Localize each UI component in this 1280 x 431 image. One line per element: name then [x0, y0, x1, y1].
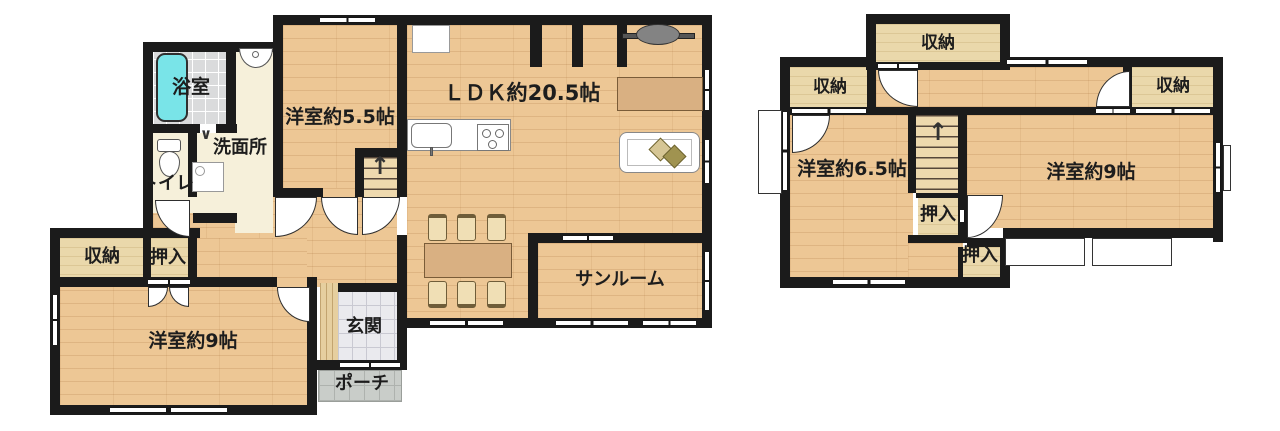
window-bay — [1092, 238, 1172, 266]
window — [704, 140, 710, 183]
room-label-bedroom-9-1f: 洋室約9帖 — [138, 332, 248, 352]
window — [1136, 108, 1210, 114]
room-label-sunroom: サンルーム — [572, 271, 668, 290]
wall-segment — [397, 235, 407, 370]
kitchen-faucet-icon — [430, 147, 433, 156]
window — [52, 295, 58, 345]
room-label-bath: 浴室 — [160, 78, 222, 98]
wall-segment — [355, 148, 364, 197]
wall-segment — [1003, 228, 1223, 238]
door-arc — [967, 195, 1003, 238]
floor-bedroom-6-5-ext — [908, 243, 963, 277]
window — [556, 320, 628, 326]
chair-icon — [428, 281, 447, 308]
room-label-oshiire-1f: 押入 — [145, 249, 191, 268]
dining-table-icon — [424, 243, 512, 278]
window — [340, 362, 400, 368]
window — [563, 235, 613, 241]
room-label-bedroom-6-5: 洋室約6.5帖 — [790, 160, 914, 180]
burner-icon — [482, 129, 491, 138]
window — [1007, 59, 1087, 65]
wall-segment — [143, 42, 153, 237]
wall-segment — [908, 235, 967, 243]
room-label-oshiire-2f-lower: 押入 — [957, 247, 1003, 266]
chair-icon — [487, 214, 506, 241]
window-bay — [1223, 145, 1231, 191]
wall-segment — [908, 107, 916, 193]
chair-icon — [457, 281, 476, 308]
wall-segment — [572, 25, 583, 67]
wall-segment — [338, 283, 407, 292]
wall-segment — [197, 277, 277, 287]
wall-segment — [226, 42, 236, 128]
wall-segment — [617, 25, 627, 67]
room-label-storage-2f-top: 収納 — [913, 35, 963, 53]
burner-icon — [488, 140, 497, 149]
chair-icon — [457, 214, 476, 241]
stairs-up-arrow-1f: ↑ — [369, 152, 391, 180]
room-label-ldk: ＬＤＫ約20.5帖 — [436, 82, 608, 104]
window — [878, 63, 918, 69]
window — [110, 407, 227, 413]
window — [782, 112, 788, 190]
floorplan-canvas: 浴室 洗面所 トイレ 洋室約5.5帖 ＬＤＫ約20.5帖 サンルーム 収納 押入… — [0, 0, 1280, 431]
tv-icon — [636, 24, 680, 45]
stairs-up-arrow-2f: ↑ — [926, 118, 950, 146]
window — [1215, 143, 1221, 192]
room-label-storage-1f: 収納 — [66, 248, 138, 267]
window — [1096, 108, 1130, 114]
wall-segment — [530, 25, 542, 67]
window — [704, 70, 710, 110]
wall-segment — [780, 57, 876, 67]
wall-segment — [528, 233, 538, 328]
window-bay — [1005, 238, 1085, 266]
chair-icon — [487, 281, 506, 308]
room-label-oshiire-2f-upper: 押入 — [915, 206, 961, 225]
cupboard-icon — [412, 25, 450, 53]
room-label-toilet: トイレ — [137, 175, 197, 194]
room-label-bedroom-9-2f: 洋室約9帖 — [1036, 163, 1146, 183]
bath-folding-door-marker: ∨ — [196, 125, 216, 143]
window — [704, 252, 710, 310]
window — [833, 279, 905, 285]
wall-segment — [193, 213, 237, 223]
wall-segment — [50, 277, 143, 287]
wall-segment — [283, 188, 323, 197]
window — [430, 320, 503, 326]
room-label-storage-2f-left: 収納 — [804, 79, 856, 97]
window — [792, 108, 866, 114]
window — [320, 17, 375, 23]
wall-segment — [397, 15, 407, 197]
wall-segment — [216, 124, 237, 133]
wall-segment — [143, 124, 200, 133]
room-label-porch: ポーチ — [332, 375, 392, 394]
window — [148, 279, 190, 285]
chair-icon — [428, 214, 447, 241]
wall-segment — [273, 15, 283, 197]
burner-icon — [495, 129, 504, 138]
room-label-bedroom-5-5: 洋室約5.5帖 — [282, 108, 398, 128]
living-table-icon — [617, 77, 703, 111]
wall-segment — [866, 14, 1010, 24]
washbasin-drain-icon — [252, 51, 259, 58]
wall-segment — [916, 193, 958, 198]
kitchen-sink-icon — [411, 123, 452, 148]
window-bay — [758, 110, 782, 194]
room-label-entrance: 玄関 — [340, 318, 388, 337]
entrance-step — [320, 283, 338, 362]
room-label-storage-2f-right: 収納 — [1147, 78, 1199, 96]
window — [643, 320, 696, 326]
